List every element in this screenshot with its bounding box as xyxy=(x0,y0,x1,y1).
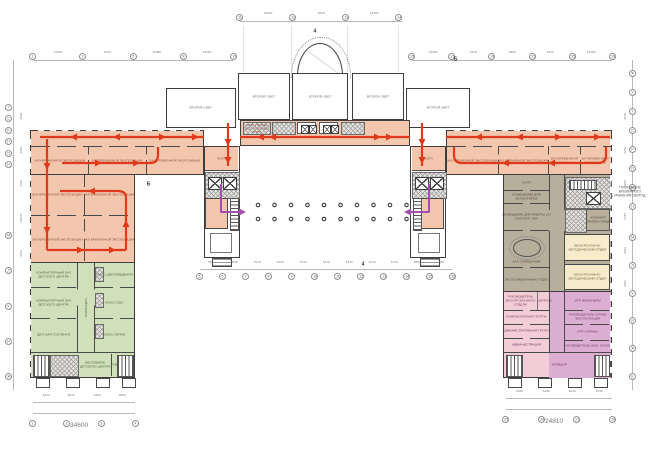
stair-tower-right: ХОЛЛ xyxy=(410,146,446,258)
room-temp-exhibition: ЗАЛ ВРЕМЕННОЙ ЭКСПОЗИЦИИ xyxy=(447,146,498,175)
porch xyxy=(538,378,552,388)
room-second-light-5: ВТОРОЙ СВЕТ xyxy=(406,88,470,128)
room-head-excursion: РУКОВОДИТЕЛЬ ЭКСКУРСИОННОГО ОТДЕЛА xyxy=(504,292,537,310)
colonnade-row-1 xyxy=(250,200,415,210)
porch xyxy=(508,378,522,388)
partition xyxy=(31,215,134,216)
right-wing-admin: ХОЛЛ ПОМЕЩЕНИЕ ДЛЯ ВОЛОНТЕРОВ ПОМЕЩЕНИЕ … xyxy=(503,175,612,292)
projection-line xyxy=(243,26,244,72)
room-head-engineering: РУКОВОДИТЕЛЬ ИНЖ. СЛУЖБ xyxy=(564,340,611,352)
grid-bubbles-top-left: 135810 xyxy=(29,53,237,60)
room-class-color: КЛАСС ЦВЕТОВЕДЕНИЯ xyxy=(94,263,134,287)
room-temp-exhibition: ЗАЛ ВРЕМЕННОЙ ЭКСПОЗИЦИИ xyxy=(146,146,203,175)
grid-bubble: Ж xyxy=(5,373,12,380)
room-temp-exhibition: ЗАЛ ВРЕМЕННОЙ ЭКСПОЗИЦИИ xyxy=(84,175,134,215)
room-volunteers: ПОМЕЩЕНИЕ ДЛЯ ВОЛОНТЕРОВ xyxy=(504,190,549,203)
grid-bubble: 25 xyxy=(502,416,509,423)
room-work-attendants: ПОМЕЩЕНИЕ ДЛЯ РАБОТЫ СО СМОТРИТ. ЗАЛ xyxy=(504,203,549,230)
room-method-dept: ЭКСКУРСИОННО-МЕТОДИЧЕСКИЙ ОТДЕЛ xyxy=(564,264,610,290)
room-class-lepki: КЛАСС ЛЕПКИ xyxy=(94,318,134,352)
stair-flight xyxy=(569,180,597,190)
grid-bubble: 16 xyxy=(449,273,456,280)
grid-bubbles-bottom-left: 1234 xyxy=(29,420,139,427)
right-margin-note: ПОМЕЩЕНИЕ ВРЕМЕННОГО ХРАНЕНИЯ ОБОРУД. xyxy=(612,186,648,198)
room-administration: АДМИНИСТРАЦИЯ xyxy=(504,338,549,352)
dims-bottom-right: 4180628050105130 xyxy=(506,388,612,395)
dim-line-top-right xyxy=(412,60,612,61)
room-class-izo: КЛАСС ИЗО xyxy=(94,287,134,318)
grid-bubble: 26 xyxy=(538,416,545,423)
grid-bubbles-top-center: 11121314 xyxy=(236,14,402,21)
grid-bubble: 9 xyxy=(288,273,295,280)
entrance-connector: СБОР У ВХОДА ЭКСКУРСИОННЫХ ГРУПП xyxy=(240,120,410,146)
dim-line-top-left xyxy=(33,60,233,61)
section-marker-bottom: 4 xyxy=(361,262,364,267)
elevator xyxy=(415,177,429,190)
exhibition-band-left: ЗАЛ ВРЕМЕННОЙ ЭКСПОЗИЦИИ ЗАЛ ВРЕМЕННОЙ Э… xyxy=(30,130,204,175)
grid-bubble: Т xyxy=(5,104,12,111)
room-kids-lounge: ДЕТСКАЯ ГОСТИНАЯ xyxy=(31,318,77,352)
room-temp-exhibition: ЗАЛ ВРЕМЕННОЙ ЭКСПОЗИЦИИ xyxy=(31,175,84,215)
porch xyxy=(96,378,110,388)
grid-bubble: 14 xyxy=(395,14,402,21)
grid-bubbles-bottom-right: 25262728 xyxy=(502,416,616,423)
porch xyxy=(568,378,582,388)
window-strip xyxy=(32,129,202,131)
room-temp-exhibition: ЗАЛ ВРЕМЕННОЙ ЭКСПОЗИЦИИ xyxy=(548,146,580,175)
stair-flight xyxy=(33,355,50,377)
grid-bubble: 2 xyxy=(63,420,70,427)
grid-bubble: 10 xyxy=(230,53,237,60)
meeting-table xyxy=(513,239,541,257)
wc-fixture xyxy=(301,125,309,134)
room-head-exploitation: РУКОВОДИТЕЛЬ СЛУЖБ ЭКСПЛУАТАЦИИ xyxy=(564,310,611,324)
elevator-core xyxy=(205,172,240,199)
wc-fixture xyxy=(309,125,317,134)
grid-bubble: 22 xyxy=(529,53,536,60)
room-computer-class: КОМПЬЮТЕРНЫЙ ЗАЛ ДЕТСКОГО ЦЕНТРА xyxy=(31,287,77,318)
grid-bubble: 27 xyxy=(573,416,580,423)
grid-bubble: 19 xyxy=(488,53,495,60)
colonnade-row-2 xyxy=(250,214,415,224)
window-strip xyxy=(610,133,612,375)
wc-block xyxy=(297,122,316,134)
grid-bubble: 5 xyxy=(130,53,137,60)
room-second-light-4: ВТОРОЙ СВЕТ xyxy=(352,73,404,120)
dims-bottom-left: 6210847054009090 xyxy=(33,392,135,399)
grid-bubble: 12 xyxy=(289,14,296,21)
porch xyxy=(36,378,50,388)
grid-bubbles-bottom-center: 5678910111213141516 xyxy=(196,273,456,280)
dims-right-edge: 284053003120415079807180 xyxy=(620,100,628,300)
tower-portico xyxy=(210,233,232,253)
dim-line-bottom-left xyxy=(33,402,135,403)
grid-bubble: 6 xyxy=(219,273,226,280)
grid-bubble: 8 xyxy=(180,53,187,60)
wc-core xyxy=(565,209,587,233)
grid-bubble: Л xyxy=(629,262,636,269)
dim-line-bottom-right xyxy=(506,398,612,399)
grid-bubble: 28 xyxy=(609,416,616,423)
room-computer-group: КОМПЬЮТЕРНАЯ ГРУППА xyxy=(504,310,549,324)
grid-bubble: О xyxy=(5,150,12,157)
room-temp-exhibition: ЗАЛ ВРЕМЕННОЙ ЭКСПОЗИЦИИ xyxy=(84,219,134,261)
grid-bubble: 25 xyxy=(569,53,576,60)
grid-bubble: Ж xyxy=(629,345,636,352)
room-admin-group: АДМИНИСТРАТИВНАЯ ГРУППА xyxy=(504,324,549,338)
grid-bubble: 4 xyxy=(132,420,139,427)
elevator xyxy=(586,192,601,205)
wc-fixture xyxy=(331,125,339,134)
room-second-light-3: ВТОРОЙ СВЕТ xyxy=(292,73,348,120)
grid-bubble: М xyxy=(5,232,12,239)
exhibition-band-right: ЗАЛ ВРЕМЕННОЙ ЭКСПОЗИЦИИ ЗАЛ ВРЕМЕННОЙ Э… xyxy=(446,130,612,175)
left-wing-exhibition: ЗАЛ ВРЕМЕННОЙ ЭКСПОЗИЦИИ ЗАЛ ВРЕМЕННОЙ Э… xyxy=(30,175,135,263)
grid-bubble: П xyxy=(629,165,636,172)
elevator xyxy=(208,177,222,190)
dim-line-top-center xyxy=(240,21,402,22)
grid-bubble: Н xyxy=(629,203,636,210)
connector-room xyxy=(367,122,407,134)
room-itr-engineers: ИТР ИНЖЕНЕРЫ xyxy=(564,292,611,310)
stair-flight xyxy=(594,355,611,377)
evac-room xyxy=(421,198,444,229)
grid-bubble: Р xyxy=(629,146,636,153)
grid-bubble: 11 xyxy=(236,14,243,21)
grid-bubble: У xyxy=(629,89,636,96)
elevator xyxy=(430,177,444,190)
grid-bubble: К xyxy=(629,290,636,297)
stair-flight xyxy=(230,198,239,231)
window-strip xyxy=(448,129,610,131)
room-computer-class: КОМПЬЮТЕРНЫЙ ЗАЛ ДЕТСКОГО ЦЕНТРА xyxy=(31,263,77,287)
corridor-room: КОРИДОР xyxy=(523,352,596,378)
left-wing-children-center: КОМПЬЮТЕРНЫЙ ЗАЛ ДЕТСКОГО ЦЕНТРА КОМПЬЮТ… xyxy=(30,263,135,378)
grid-bubble: Т xyxy=(629,108,636,115)
grid-bubble: Ф xyxy=(629,70,636,77)
evac-room xyxy=(205,198,228,229)
grid-bubble: 3 xyxy=(98,420,105,427)
tower-hall: ХОЛЛ xyxy=(412,147,445,171)
room-meeting: ЗАЛ СОВЕЩАНИЙ xyxy=(504,230,549,267)
grid-bubble: 15 xyxy=(408,53,415,60)
grid-bubble: Л xyxy=(5,267,12,274)
section-marker-right: Б xyxy=(454,57,458,62)
grid-bubble: Н xyxy=(5,161,12,168)
room-itr-security: ИТР ОХРАНЫ xyxy=(564,324,611,340)
tower-portico xyxy=(418,233,440,253)
grid-bubble: Р xyxy=(5,127,12,134)
room-second-light-1: ВТОРОЙ СВЕТ xyxy=(166,88,236,128)
grid-bubble: 14 xyxy=(403,273,410,280)
grid-bubble: 28 xyxy=(609,53,616,60)
grid-bubble: 8 xyxy=(265,273,272,280)
porch xyxy=(122,378,136,388)
grid-bubble: К xyxy=(5,303,12,310)
partition xyxy=(31,352,134,353)
dim-line-bottom-center xyxy=(200,269,452,270)
room-method-dept: ЭКСКУРСИОННО-МЕТОДИЧЕСКИЙ ОТДЕЛ xyxy=(564,234,610,261)
grid-bubble: С xyxy=(5,115,12,122)
wet-core xyxy=(272,122,296,135)
grid-bubble: 15 xyxy=(426,273,433,280)
room-hall: ХОЛЛ xyxy=(504,175,549,190)
dims-left-edge: 284041507560109807560 xyxy=(16,100,24,270)
stair-elevator-core xyxy=(565,177,612,209)
tower-hall: ХОЛЛ xyxy=(205,147,238,171)
grid-bubbles-right-lower: МЛКИЖЕ xyxy=(629,234,636,380)
grid-bubble: 1 xyxy=(29,420,36,427)
grid-bubble: 10 xyxy=(311,273,318,280)
stair-flight xyxy=(117,355,134,377)
porch xyxy=(66,378,80,388)
grid-bubble: М xyxy=(629,234,636,241)
grid-bubble: 7 xyxy=(242,273,249,280)
window-strip xyxy=(29,133,31,375)
grid-bubble: 3 xyxy=(79,53,86,60)
grid-bubble: 11 xyxy=(334,273,341,280)
grid-bubble: Е xyxy=(629,373,636,380)
porch xyxy=(594,378,608,388)
dim-line-left-edge xyxy=(13,60,14,390)
wet-core xyxy=(341,122,365,135)
grid-bubbles-left-lower: МЛКИЖ xyxy=(5,232,12,380)
section-marker-top: 4 xyxy=(313,29,316,34)
right-wing-offices: РУКОВОДИТЕЛЬ ЭКСКУРСИОННОГО ОТДЕЛА СЕКРЕ… xyxy=(503,292,612,378)
entrance-steps xyxy=(420,258,440,267)
grid-bubble: 1 xyxy=(29,53,36,60)
room-second-light-2: ВТОРОЙ СВЕТ xyxy=(238,73,290,120)
grid-bubble: С xyxy=(629,127,636,134)
stair-tower-left: ХОЛЛ xyxy=(204,146,240,258)
grid-bubble: И xyxy=(5,338,12,345)
room-temp-exhibition: ЗАЛ ВРЕМЕННОЙ ЭКСПОЗИЦИИ xyxy=(580,146,611,175)
grid-bubble: П xyxy=(5,138,12,145)
wc-core xyxy=(50,355,79,377)
grid-bubble: 13 xyxy=(380,273,387,280)
entrance-steps xyxy=(212,258,232,267)
wc-fixture xyxy=(323,125,331,134)
grid-bubble: 12 xyxy=(357,273,364,280)
room-temp-exhibition: ЗАЛ ВРЕМЕННОЙ ЭКСПОЗИЦИИ xyxy=(498,146,548,175)
grid-bubbles-left-upper: ТСРПОН xyxy=(5,104,12,168)
elevator xyxy=(223,177,237,190)
dims-bottom-center: 7980483057105710571057105710571057104830… xyxy=(200,259,452,266)
grid-bubble: И xyxy=(629,317,636,324)
room-temp-exhibition: ЗАЛ ВРЕМЕННОЙ ЭКСПОЗИЦИИ xyxy=(31,219,84,261)
wc-block xyxy=(319,122,338,134)
room-expo-dept: ЭКСПОЗИЦИОННЫЙ ОТДЕЛ xyxy=(504,267,549,292)
room-secretary: СЕКРЕТАРЬ xyxy=(537,292,549,310)
grid-bubble: 5 xyxy=(196,273,203,280)
room-temp-exhibition: ЗАЛ ВРЕМЕННОЙ ЭКСПОЗИЦИИ xyxy=(31,146,88,175)
floor-plan: 14300691014300 11121314 1430097201198014… xyxy=(0,0,650,449)
gathering-area: СБОР У ВХОДА ЭКСКУРСИОННЫХ ГРУПП xyxy=(243,122,271,135)
room-temp-exhibition: ЗАЛ ВРЕМЕННОЙ ЭКСПОЗИЦИИ xyxy=(88,146,146,175)
projection-line xyxy=(398,26,399,72)
grid-bubbles-top-right: 151719222528 xyxy=(408,53,616,60)
room-eat: КОМНАТА ПРИЕМА ПИЩИ xyxy=(586,209,610,231)
section-marker-left: Б xyxy=(147,182,151,187)
kids-vestibule: ВЕСТИБЮЛЬ ДЕТСКОГО ЦЕНТРА xyxy=(79,354,111,376)
elevator-core xyxy=(412,172,447,199)
grid-bubble: 13 xyxy=(342,14,349,21)
